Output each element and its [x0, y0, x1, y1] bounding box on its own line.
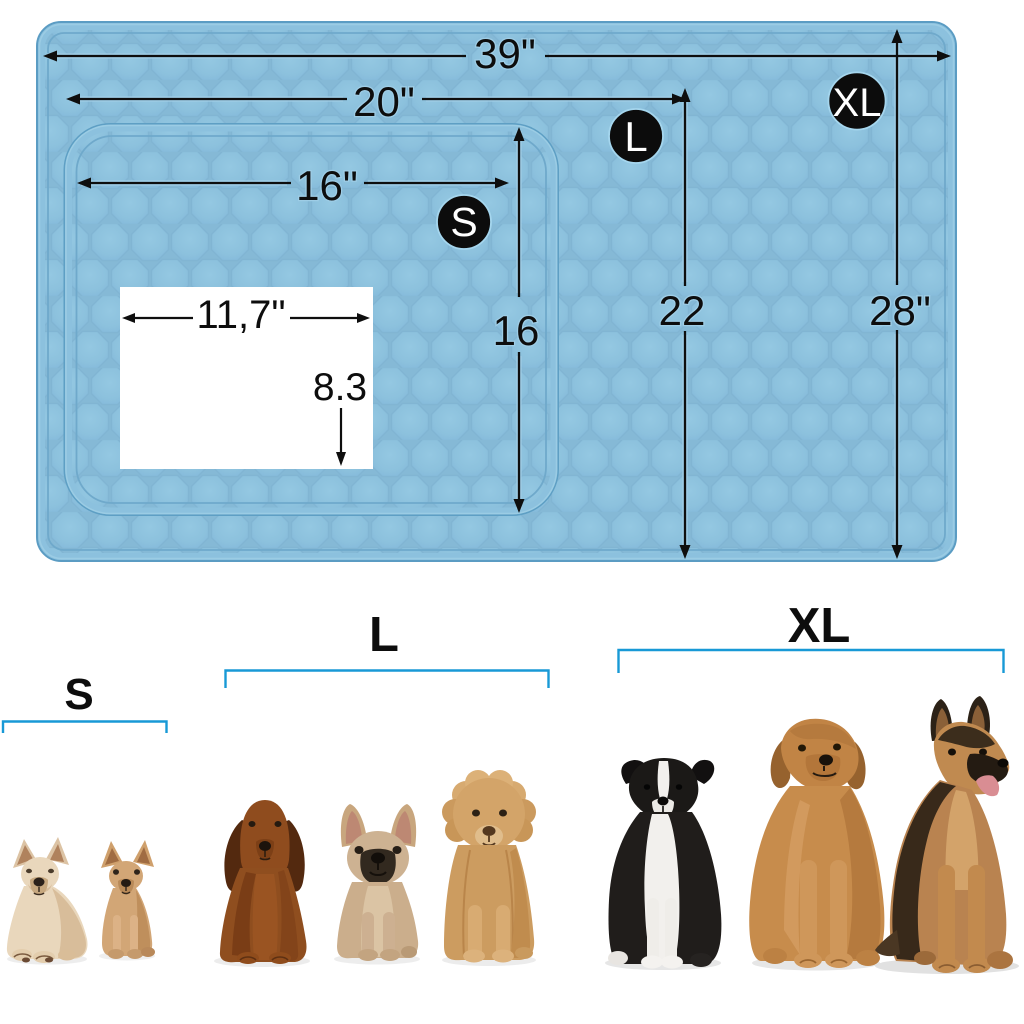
svg-text:20": 20": [353, 78, 415, 125]
svg-text:39": 39": [474, 30, 536, 77]
svg-text:XL: XL: [788, 599, 851, 653]
svg-text:S: S: [450, 199, 477, 245]
svg-text:22: 22: [659, 287, 706, 334]
svg-text:L: L: [369, 608, 399, 662]
svg-text:16: 16: [493, 307, 540, 354]
svg-text:16": 16": [296, 162, 358, 209]
svg-text:S: S: [64, 670, 93, 719]
svg-text:XL: XL: [833, 81, 882, 125]
svg-text:11,7": 11,7": [196, 293, 285, 337]
svg-text:8.3: 8.3: [313, 366, 367, 409]
svg-text:28": 28": [869, 287, 931, 334]
svg-text:L: L: [624, 113, 647, 160]
